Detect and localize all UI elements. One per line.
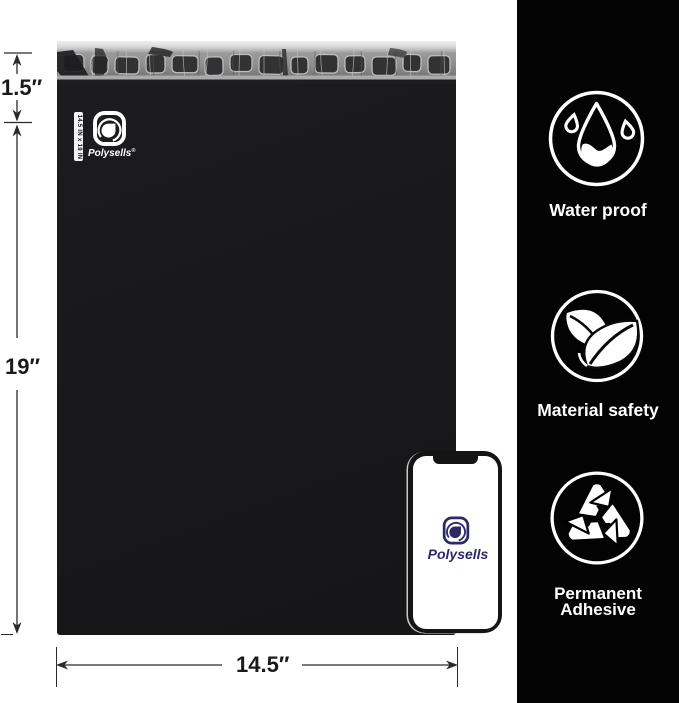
- svg-text:14.5″: 14.5″: [236, 652, 290, 677]
- svg-text:1.5″: 1.5″: [1, 75, 43, 100]
- svg-text:19″: 19″: [5, 354, 40, 379]
